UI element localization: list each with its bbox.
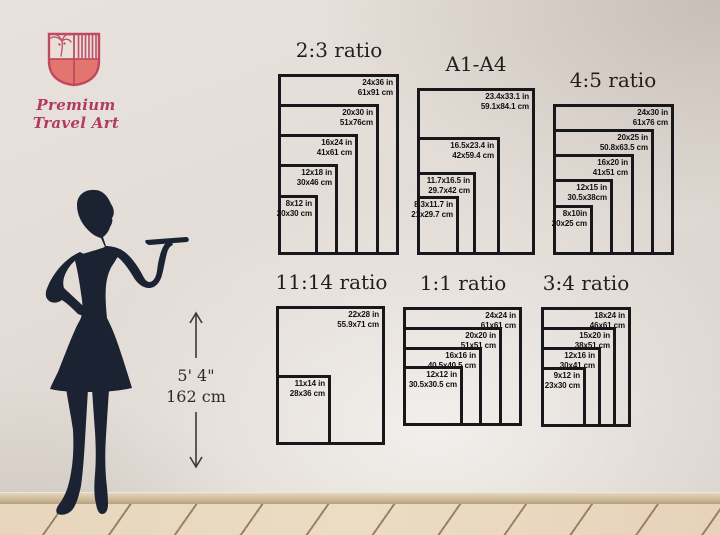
size-label: 12x12 in30.5x30.5 cm <box>409 370 457 390</box>
size-label: 16.5x23.4 in42x59.4 cm <box>450 141 494 161</box>
size-label: 16x24 in41x61 cm <box>317 138 352 158</box>
panel-title: 2:3 ratio <box>296 38 383 62</box>
nested-rectangles: 18x24 in46x61 cm15x20 in38x51 cm12x16 in… <box>541 307 631 427</box>
size-rect-9x12: 9x12 in23x30 cm <box>541 367 586 427</box>
woman-silhouette <box>46 190 189 515</box>
size-rect-12x12: 12x12 in30.5x30.5 cm <box>403 366 463 426</box>
size-label: 12x18 in30x46 cm <box>297 168 332 188</box>
height-label-imperial: 5' 4" <box>146 366 246 385</box>
size-rect-8x10: 8x10in20x25 cm <box>553 205 593 255</box>
panel-title: A1-A4 <box>445 52 506 76</box>
ratio-panel-11-14: 11:14 ratio 22x28 in55.9x71 cm11x14 in28… <box>276 306 387 445</box>
height-label-metric: 162 cm <box>146 387 246 406</box>
size-rect-8x12: 8x12 in20x30 cm <box>278 195 318 255</box>
panel-title: 11:14 ratio <box>276 270 388 294</box>
ratio-panel-4-5: 4:5 ratio 24x30 in61x76 cm20x25 in50.8x6… <box>553 104 673 255</box>
ratio-panel-3-4: 3:4 ratio 18x24 in46x61 cm15x20 in38x51 … <box>541 307 631 427</box>
ratio-panel-2-3: 2:3 ratio 24x36 in61x91 cm20x30 in51x76c… <box>278 74 400 255</box>
ratio-panel-a1-a4: A1-A4 23.4x33.1 in59.1x84.1 cm16.5x23.4 … <box>417 88 535 255</box>
size-label: 22x28 in55.9x71 cm <box>337 310 379 330</box>
nested-rectangles: 22x28 in55.9x71 cm11x14 in28x36 cm <box>276 306 387 445</box>
size-label: 12x15 in30.5x38cm <box>567 183 607 203</box>
size-label: 16x20 in41x51 cm <box>593 158 628 178</box>
panel-title: 3:4 ratio <box>543 271 630 295</box>
size-label: 8x12 in20x30 cm <box>277 199 312 219</box>
size-guide-scene: Premium Travel Art 5' 4" 162 cm 2:3 rati <box>0 0 720 535</box>
size-label: 9x12 in23x30 cm <box>545 371 580 391</box>
nested-rectangles: 23.4x33.1 in59.1x84.1 cm16.5x23.4 in42x5… <box>417 88 535 255</box>
panel-title: 4:5 ratio <box>570 68 657 92</box>
size-label: 20x25 in50.8x63.5 cm <box>600 133 648 153</box>
size-label: 8.3x11.7 in21x29.7 cm <box>411 200 453 220</box>
size-label: 8x10in20x25 cm <box>552 209 587 229</box>
nested-rectangles: 24x36 in61x91 cm20x30 in51x76cm16x24 in4… <box>278 74 400 255</box>
size-label: 20x30 in51x76cm <box>340 108 373 128</box>
size-rect-8.3x11.7: 8.3x11.7 in21x29.7 cm <box>417 196 459 255</box>
nested-rectangles: 24x30 in61x76 cm20x25 in50.8x63.5 cm16x2… <box>553 104 673 255</box>
size-label: 11x14 in28x36 cm <box>290 379 325 399</box>
size-rect-11x14: 11x14 in28x36 cm <box>276 375 331 445</box>
panel-title: 1:1 ratio <box>420 271 507 295</box>
size-label: 11.7x16.5 in29.7x42 cm <box>427 176 470 196</box>
size-label: 24x30 in61x76 cm <box>633 108 668 128</box>
size-label: 24x36 in61x91 cm <box>358 78 393 98</box>
ratio-panel-1-1: 1:1 ratio 24x24 in61x61 cm20x20 in51x51 … <box>403 307 523 426</box>
size-label: 23.4x33.1 in59.1x84.1 cm <box>481 92 529 112</box>
nested-rectangles: 24x24 in61x61 cm20x20 in51x51 cm16x16 in… <box>403 307 523 426</box>
